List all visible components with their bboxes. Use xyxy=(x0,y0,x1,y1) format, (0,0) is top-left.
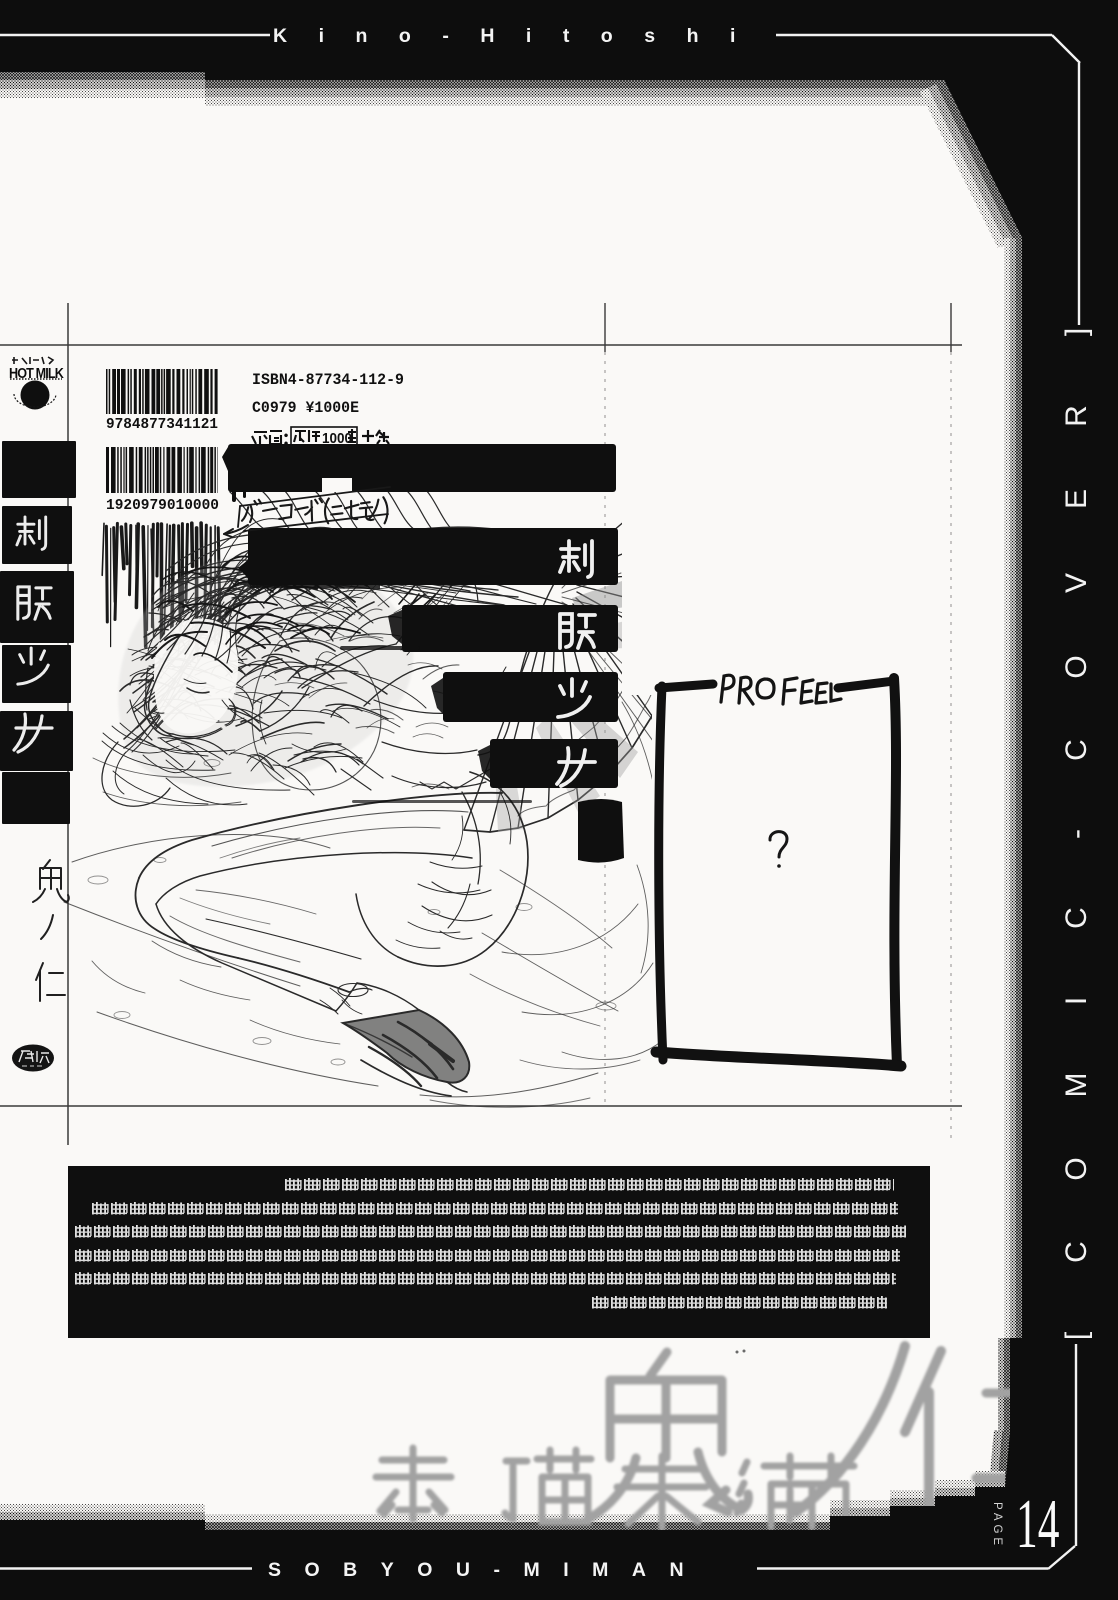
svg-text:1920979010000: 1920979010000 xyxy=(106,497,219,514)
svg-text:V: V xyxy=(1060,573,1093,593)
svg-text:I: I xyxy=(1060,997,1093,1005)
svg-text:O: O xyxy=(1060,655,1093,678)
svg-text:E: E xyxy=(1060,489,1093,509)
svg-text:ISBN4-87734-112-9: ISBN4-87734-112-9 xyxy=(252,371,404,389)
svg-text:C: C xyxy=(1060,739,1093,761)
svg-text:9784877341121: 9784877341121 xyxy=(106,416,218,433)
svg-text:C: C xyxy=(1060,907,1093,929)
svg-text:O: O xyxy=(1060,1157,1093,1180)
svg-text:PAGE: PAGE xyxy=(991,1502,1003,1549)
svg-text:-: - xyxy=(1060,829,1093,839)
svg-text:C0979 ¥1000E: C0979 ¥1000E xyxy=(252,399,359,417)
svg-text:M: M xyxy=(1060,1073,1093,1098)
svg-text:Kino-Hitoshi: Kino-Hitoshi xyxy=(273,25,767,47)
svg-text:SOBYOU-MIMAN: SOBYOU-MIMAN xyxy=(268,1559,707,1581)
svg-text:14: 14 xyxy=(1016,1484,1059,1562)
svg-text:[: [ xyxy=(1060,1331,1093,1340)
svg-text:]: ] xyxy=(1060,328,1093,336)
svg-text:C: C xyxy=(1060,1241,1093,1263)
svg-text:R: R xyxy=(1060,405,1093,427)
